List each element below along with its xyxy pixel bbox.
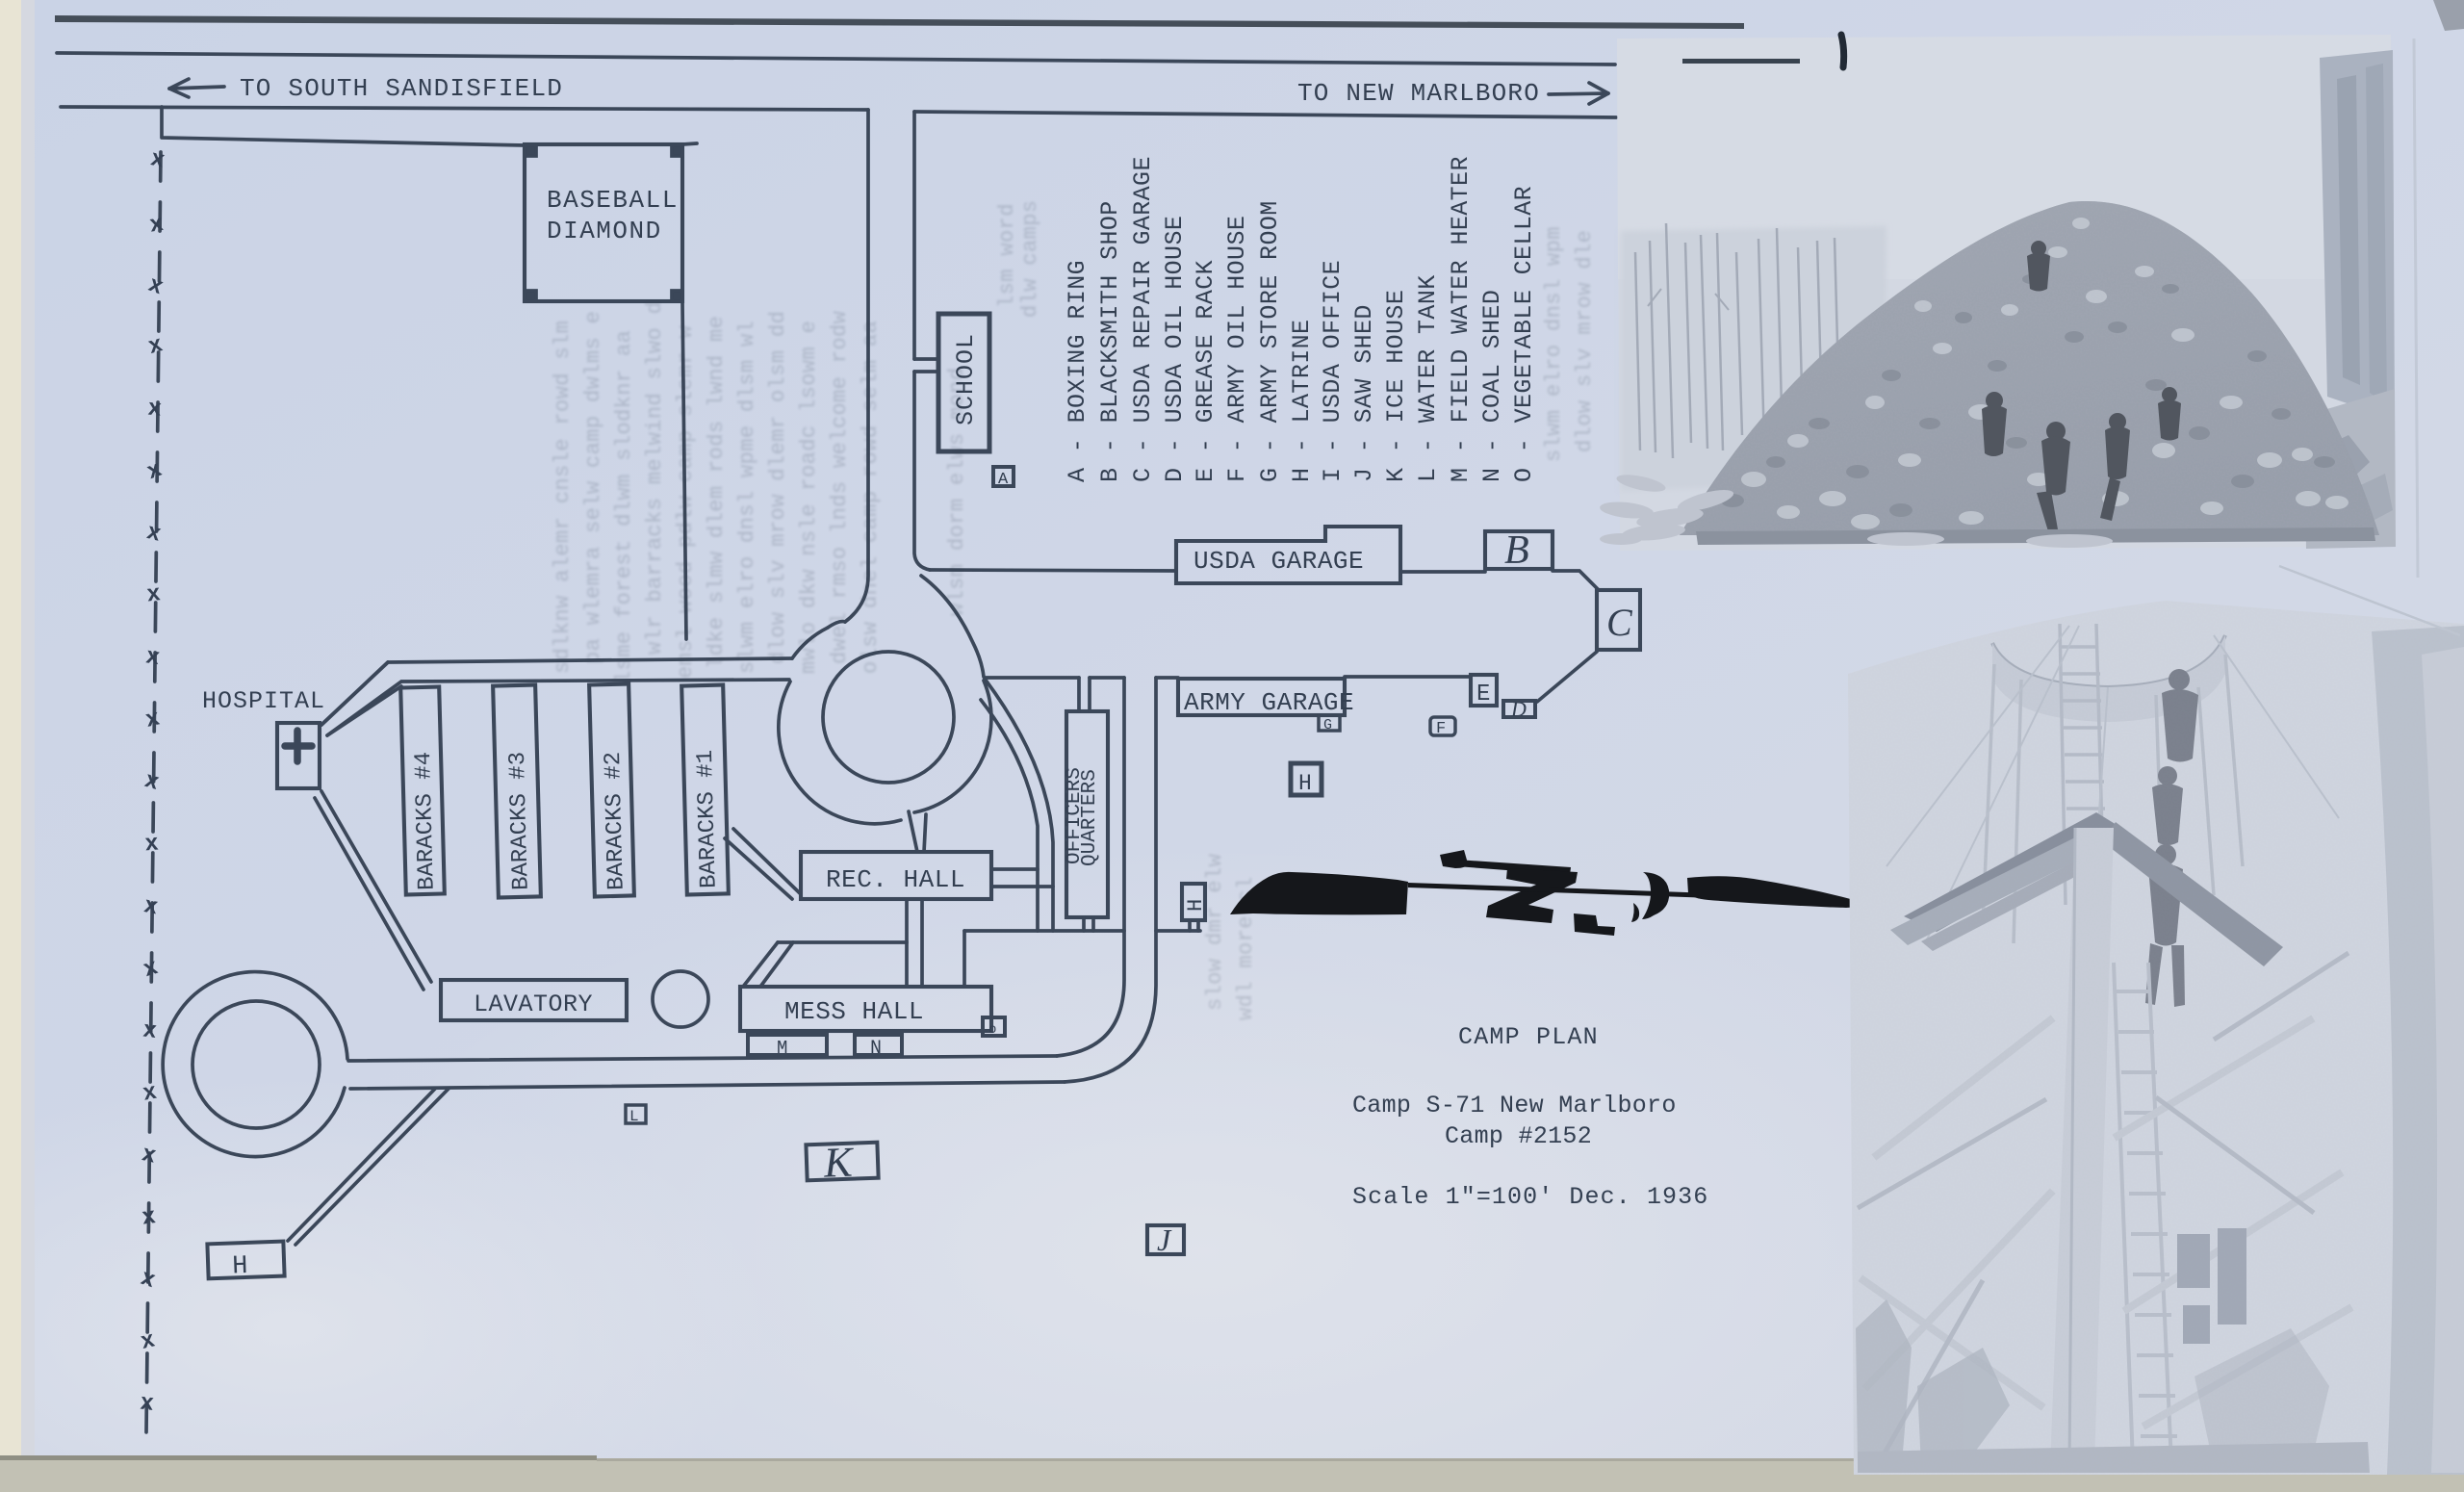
svg-text:x: x xyxy=(144,829,160,856)
svg-text:O - VEGETABLE CELLAR: O - VEGETABLE CELLAR xyxy=(1510,186,1538,482)
svg-text:dwel rmso lnds welcome rodw: dwel rmso lnds welcome rodw xyxy=(828,311,852,664)
svg-text:o: o xyxy=(988,1022,996,1038)
svg-text:N - COAL SHED: N - COAL SHED xyxy=(1478,290,1506,482)
svg-text:I - USDA OFFICE: I - USDA OFFICE xyxy=(1319,260,1347,482)
svg-text:J - SAW SHED: J - SAW SHED xyxy=(1350,304,1378,482)
svg-text:slwm elro dnsl wpme dlsm wl: slwm elro dnsl wpme dlsm wl xyxy=(735,321,759,674)
svg-text:BARACKS #2: BARACKS #2 xyxy=(601,752,630,891)
svg-text:K: K xyxy=(822,1139,856,1187)
svg-text:sdlknw alemr cnsle rowd slm: sdlknw alemr cnsle rowd slm xyxy=(551,321,575,674)
svg-text:mwlo dkw nsle roadc lsowm e: mwlo dkw nsle roadc lsowm e xyxy=(797,321,821,674)
svg-text:wlsm dorm elws mond: wlsm dorm elws mond xyxy=(945,368,969,616)
svg-text:dlw camps: dlw camps xyxy=(1018,200,1042,318)
svg-text:ldke slmw dlem rods lwnd me: ldke slmw dlem rods lwnd me xyxy=(705,316,729,669)
svg-text:HOSPITAL: HOSPITAL xyxy=(202,687,325,715)
svg-text:M - FIELD WATER HEATER: M - FIELD WATER HEATER xyxy=(1447,156,1475,482)
svg-text:dlow slv mrow dlemr olsm dd: dlow slv mrow dlemr olsm dd xyxy=(766,311,790,664)
svg-text:C: C xyxy=(1606,601,1633,644)
svg-text:D - USDA OIL HOUSE: D - USDA OIL HOUSE xyxy=(1161,216,1189,482)
svg-text:C - USDA REPAIR GARAGE: C - USDA REPAIR GARAGE xyxy=(1129,156,1157,482)
svg-text:Camp S-71 New Marlboro: Camp S-71 New Marlboro xyxy=(1352,1092,1677,1119)
svg-text:E - GREASE RACK: E - GREASE RACK xyxy=(1192,260,1219,482)
svg-text:B: B xyxy=(1504,528,1529,573)
svg-text:Scale 1"=100' Dec. 1936: Scale 1"=100' Dec. 1936 xyxy=(1352,1183,1708,1211)
svg-text:BASEBALL: BASEBALL xyxy=(547,186,679,215)
svg-text:A - BOXING RING: A - BOXING RING xyxy=(1064,260,1091,482)
svg-text:BARACKS #1: BARACKS #1 xyxy=(693,750,723,889)
svg-text:A: A xyxy=(998,471,1009,489)
svg-text:N: N xyxy=(870,1038,882,1060)
svg-text:H - LATRINE: H - LATRINE xyxy=(1288,320,1316,482)
svg-text:L - WATER TANK: L - WATER TANK xyxy=(1414,274,1442,482)
svg-text:D: D xyxy=(1510,697,1527,721)
svg-text:F - ARMY OIL HOUSE: F - ARMY OIL HOUSE xyxy=(1223,216,1251,482)
svg-text:slwm elro dnsl wpm: slwm elro dnsl wpm xyxy=(1542,226,1566,462)
svg-text:dlow slv mrow dle: dlow slv mrow dle xyxy=(1573,230,1597,452)
svg-text:wlr barracks melwind slwo d: wlr barracks melwind slwo d xyxy=(643,301,667,655)
svg-text:lsme forest dlwm slodknr aa: lsme forest dlwm slodknr aa xyxy=(612,330,636,683)
svg-text:H: H xyxy=(232,1252,248,1282)
svg-text:TO NEW MARLBORO: TO NEW MARLBORO xyxy=(1297,79,1540,108)
svg-text:BARACKS #3: BARACKS #3 xyxy=(505,752,535,891)
svg-text:G - ARMY STORE ROOM: G - ARMY STORE ROOM xyxy=(1256,200,1284,482)
svg-text:DIAMOND: DIAMOND xyxy=(547,217,662,245)
svg-text:K - ICE HOUSE: K - ICE HOUSE xyxy=(1382,290,1410,482)
svg-text:lsm word: lsm word xyxy=(995,203,1019,308)
svg-text:M: M xyxy=(777,1038,787,1059)
svg-text:B - BLACKSMITH SHOP: B - BLACKSMITH SHOP xyxy=(1096,200,1124,482)
svg-text:pa wlemra selw camp dwlms e: pa wlemra selw camp dwlms e xyxy=(581,311,605,664)
svg-text:ARMY GARAGE: ARMY GARAGE xyxy=(1184,688,1354,717)
svg-text:REC. HALL: REC. HALL xyxy=(826,865,965,894)
svg-text:QUARTERS: QUARTERS xyxy=(1079,769,1101,866)
svg-text:E: E xyxy=(1476,682,1490,707)
svg-text:F: F xyxy=(1436,720,1446,738)
svg-text:TO SOUTH SANDISFIELD: TO SOUTH SANDISFIELD xyxy=(240,74,563,103)
svg-text:G: G xyxy=(1323,717,1332,733)
svg-text:CAMP PLAN: CAMP PLAN xyxy=(1458,1023,1599,1051)
svg-text:MESS HALL: MESS HALL xyxy=(784,997,924,1026)
svg-text:Camp #2152: Camp #2152 xyxy=(1445,1122,1592,1150)
svg-text:LAVATORY: LAVATORY xyxy=(474,990,593,1018)
svg-text:J: J xyxy=(1157,1222,1172,1257)
svg-text:L: L xyxy=(629,1108,639,1125)
svg-text:olsw dnel camp rowd selm aa: olsw dnel camp rowd selm aa xyxy=(859,321,883,674)
svg-text:USDA GARAGE: USDA GARAGE xyxy=(1193,547,1364,576)
svg-text:H: H xyxy=(1298,771,1312,796)
svg-text:emsl wood pdlw camp slemr w: emsl wood pdlw camp slemr w xyxy=(674,325,698,679)
svg-text:slow dmr elw: slow dmr elw xyxy=(1203,854,1227,1011)
svg-text:BARACKS #4: BARACKS #4 xyxy=(411,752,441,891)
